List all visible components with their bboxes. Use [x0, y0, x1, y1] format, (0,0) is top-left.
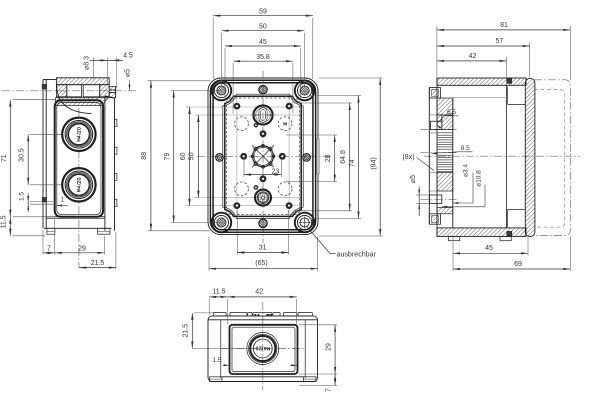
- svg-text:50: 50: [259, 24, 267, 31]
- svg-text:(65): (65): [255, 260, 267, 267]
- svg-text:6.5: 6.5: [447, 109, 456, 116]
- svg-text:50: 50: [189, 152, 196, 160]
- svg-text:29: 29: [78, 245, 86, 252]
- svg-text:11.5: 11.5: [1, 215, 8, 228]
- svg-text:21.5: 21.5: [183, 324, 190, 338]
- svg-text:23: 23: [272, 169, 280, 176]
- svg-text:⌀3.4: ⌀3.4: [462, 164, 469, 177]
- svg-text:⌀8.3: ⌀8.3: [83, 56, 90, 70]
- svg-text:74: 74: [349, 159, 356, 167]
- svg-text:79: 79: [164, 153, 171, 161]
- svg-text:ausbrechbar: ausbrechbar: [337, 251, 377, 259]
- svg-text:(94): (94): [371, 157, 378, 169]
- svg-text:1: 1: [61, 197, 65, 204]
- svg-text:⌀5: ⌀5: [410, 175, 417, 183]
- svg-text:45: 45: [485, 245, 493, 252]
- svg-text:7: 7: [47, 245, 51, 252]
- svg-text:45: 45: [259, 39, 267, 46]
- svg-text:71: 71: [1, 154, 8, 162]
- svg-text:57: 57: [496, 38, 504, 45]
- svg-text:28: 28: [325, 154, 332, 162]
- svg-text:4.5: 4.5: [123, 53, 133, 60]
- svg-text:69: 69: [514, 261, 522, 268]
- svg-text:42: 42: [255, 289, 263, 296]
- svg-text:30.5: 30.5: [19, 148, 26, 162]
- svg-text:1.5: 1.5: [19, 192, 26, 201]
- svg-text:31: 31: [259, 244, 267, 251]
- svg-text:7: 7: [325, 388, 332, 392]
- svg-text:35.8: 35.8: [256, 54, 270, 61]
- svg-text:⌀10.8: ⌀10.8: [476, 170, 483, 187]
- svg-text:1.5: 1.5: [212, 357, 221, 364]
- svg-text:21.5: 21.5: [91, 260, 105, 267]
- svg-text:29: 29: [325, 343, 332, 351]
- svg-text:8.5: 8.5: [461, 145, 470, 152]
- svg-text:(8x): (8x): [402, 154, 414, 161]
- svg-text:11.5: 11.5: [212, 289, 225, 296]
- svg-text:81: 81: [500, 22, 508, 29]
- svg-text:88: 88: [141, 152, 148, 160]
- svg-text:60: 60: [180, 152, 187, 160]
- svg-text:⌀5: ⌀5: [125, 69, 132, 77]
- svg-text:59: 59: [259, 9, 267, 16]
- svg-text:42: 42: [469, 53, 477, 60]
- svg-text:64.8: 64.8: [340, 150, 347, 164]
